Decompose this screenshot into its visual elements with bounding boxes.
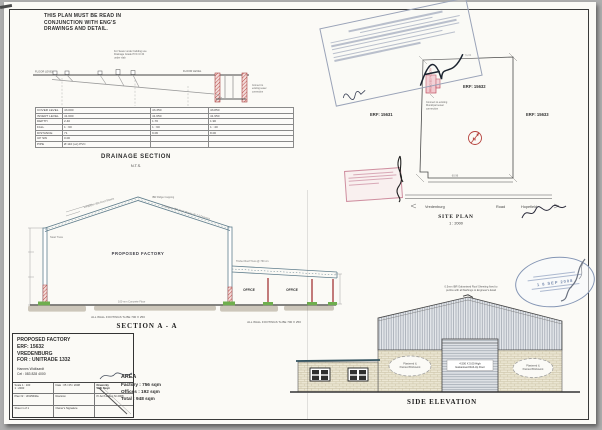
scanned-plan-sheet: THIS PLAN MUST BE READ IN CONJUNCTION WI…	[0, 0, 602, 430]
date-cell: Date : 05 / 05 / 2008	[54, 383, 95, 394]
road-label-right: Hopefield	[521, 205, 537, 209]
revision-cell: Revision	[54, 394, 95, 405]
office-roof-edge	[296, 360, 380, 361]
area-schedule: AREA Factory : 756 sqm Offices : 192 sqm…	[121, 374, 216, 403]
area-offices: Offices : 192 sqm	[121, 388, 216, 395]
drainage-section-drawing: For Sewer under building use Drainage Gr…	[28, 42, 280, 110]
right-slope-note: Longspan IBR Roof Sheets @ 7.5 Degrees	[162, 203, 211, 221]
connect-note: Connect to	[252, 84, 264, 87]
paper-fold-crease	[307, 190, 308, 419]
project-town: VREDENBURG	[17, 351, 133, 358]
section-aa-title: SECTION A - A	[100, 322, 194, 330]
side-elevation-title: SIDE ELEVATION	[399, 398, 485, 406]
pen-mark	[386, 152, 414, 206]
plan-nr-cell: Plan Nr : UN15632a	[13, 394, 54, 405]
truss-note: Steel Truss	[50, 235, 64, 239]
scale-cell: Scale 1 : 100 1 : 2000	[13, 383, 54, 394]
sheet-cell: Sheet 1 of 1	[13, 406, 54, 417]
svg-text:Painted Brickwork: Painted Brickwork	[400, 365, 421, 369]
project-info: PROPOSED FACTORY ERF: 15632 VREDENBURG F…	[13, 334, 133, 364]
road-lines	[405, 195, 552, 199]
bottom-boundary-dim: 60.96	[452, 174, 459, 178]
area-factory: Factory : 756 sqm	[121, 381, 216, 388]
office-window-2	[348, 368, 368, 381]
project-client: FOR : UNITRADE 1332	[17, 357, 133, 364]
drain-fixtures	[53, 70, 135, 75]
footings-note-left: ALL WALL FOOTINGS To BE 700 X 250	[91, 315, 145, 319]
project-erf: ERF: 15632	[17, 344, 133, 351]
factory-label: PROPOSED FACTORY	[112, 251, 165, 256]
drainage-section-title: DRAINAGE SECTION	[84, 154, 188, 160]
manhole-detail	[215, 73, 247, 102]
erf-label-left: ERF: 15631	[370, 112, 393, 117]
svg-text:Plastered &: Plastered &	[526, 364, 540, 368]
must-read-note: THIS PLAN MUST BE READ IN CONJUNCTION WI…	[44, 13, 184, 33]
drainage-section-scale: N.T.S.	[84, 164, 188, 168]
apex-note: IBR Ridge Capping	[152, 195, 175, 199]
road-label-center: Road	[496, 205, 505, 209]
svg-text:Painted Brickwork: Painted Brickwork	[523, 367, 544, 371]
office-window-1	[310, 368, 330, 381]
roof-truss	[45, 197, 230, 232]
svg-text:Galvanised Roll-Up Door: Galvanised Roll-Up Door	[455, 365, 485, 369]
svg-text:existing sewer: existing sewer	[252, 87, 267, 90]
area-title: AREA	[121, 374, 216, 381]
area-total: Total : 948 sqm	[121, 395, 216, 402]
svg-text:purlins with all flashings to: purlins with all flashings to Engineer's…	[446, 288, 496, 292]
pencil-initial	[553, 257, 591, 305]
floor-level-label-left: FLOOR LEVEL	[35, 70, 54, 74]
svg-text:connection: connection	[252, 90, 264, 93]
office-label-1: OFFICE	[243, 288, 255, 292]
svg-text:connection: connection	[426, 107, 439, 110]
drainage-schedule-table: COVER LEVEL43.00043.35043.850 INVERT LEV…	[35, 107, 294, 148]
svg-text:Plastered &: Plastered &	[403, 362, 417, 366]
site-plan-title: SITE PLAN	[438, 214, 474, 220]
project-title: PROPOSED FACTORY	[17, 337, 133, 344]
erf-label-right: ERF: 15633	[526, 112, 549, 117]
floor-note: 100 mm Concrete Floor	[118, 300, 145, 304]
door-label: 4.500 X 5.00 High	[459, 361, 481, 365]
owner-signature-cell: Owner's Signature	[54, 406, 95, 417]
left-slope-note: Longspan IBR Roof Sheets	[83, 196, 115, 209]
road-label-left: Vredenburg	[425, 205, 445, 209]
elevation-roof-note: 0.5mm IBR Galvanised Roof Sheeting fixed…	[445, 284, 498, 288]
erf-label-center: ERF: 15632	[463, 84, 486, 89]
svg-text:under slab: under slab	[114, 56, 126, 59]
floor-level-label-right: FLOOR LEVEL	[183, 69, 202, 73]
truss-webbing	[45, 199, 230, 230]
svg-text:N: N	[473, 136, 476, 141]
table-row: PIPEØ 110 (uc) PVC	[36, 142, 294, 148]
footprint-leader	[430, 94, 434, 98]
sewer-drain-line	[52, 80, 214, 95]
site-plan-scale: 1 : 2000	[449, 222, 463, 226]
lean-to-truss	[232, 266, 337, 278]
lean-to-note: Timber Roof Truss @ 760 crs	[236, 260, 269, 263]
north-arrow-icon: N	[469, 132, 482, 145]
